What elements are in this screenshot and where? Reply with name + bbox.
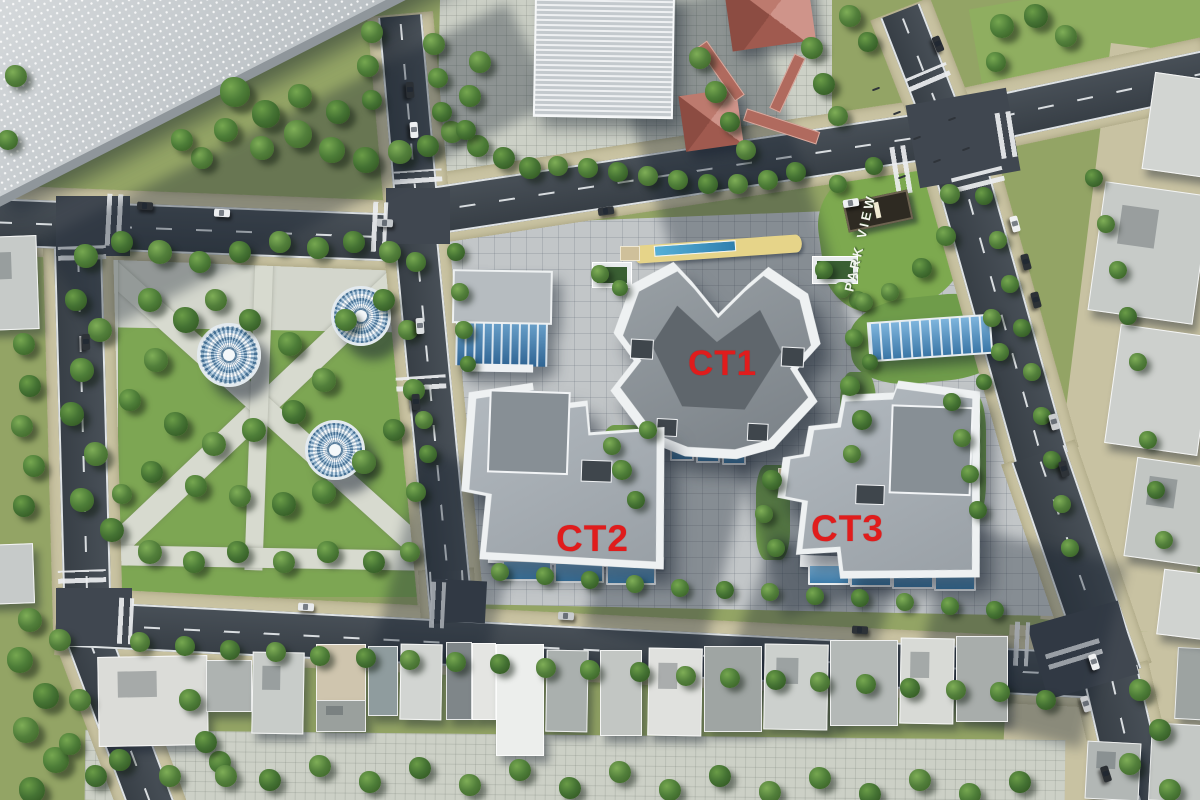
park-view-lawn-text: PARK VIEW xyxy=(841,192,878,293)
label-layer: CT1 CT2 CT3 PARK VIEW xyxy=(0,0,1200,800)
masterplan-aerial-render: CT1 CT2 CT3 PARK VIEW xyxy=(0,0,1200,800)
building-label-ct2: CT2 xyxy=(556,518,629,560)
building-label-ct3: CT3 xyxy=(811,508,884,550)
building-label-ct1: CT1 xyxy=(688,344,757,384)
